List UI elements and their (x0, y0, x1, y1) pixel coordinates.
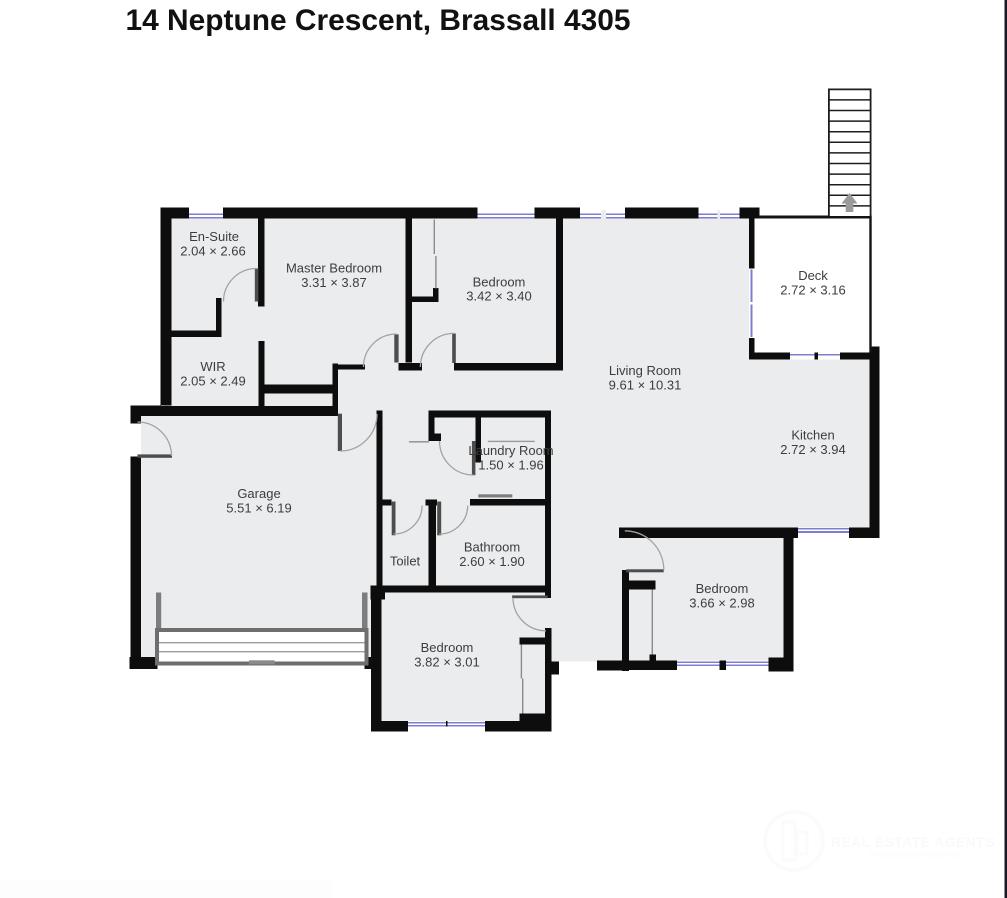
svg-text:Toilet: Toilet (390, 554, 421, 569)
svg-text:Laundry Room: Laundry Room (468, 443, 553, 458)
svg-text:Bedroom: Bedroom (473, 275, 526, 290)
svg-text:1.50 × 1.96: 1.50 × 1.96 (478, 458, 543, 473)
svg-text:2.05 × 2.49: 2.05 × 2.49 (180, 374, 245, 389)
svg-text:Master Bedroom: Master Bedroom (286, 261, 382, 276)
svg-text:3.66 × 2.98: 3.66 × 2.98 (689, 596, 754, 611)
svg-text:Garage: Garage (237, 486, 280, 501)
svg-text:Bathroom: Bathroom (464, 540, 520, 555)
svg-text:Bedroom: Bedroom (421, 640, 474, 655)
svg-text:Real estate professionals: Real estate professionals (869, 849, 965, 859)
svg-text:Deck: Deck (798, 268, 828, 283)
svg-text:WIR: WIR (200, 359, 225, 374)
svg-text:2.60 × 1.90: 2.60 × 1.90 (459, 554, 524, 569)
svg-text:2.72 × 3.16: 2.72 × 3.16 (780, 282, 845, 297)
svg-text:Bedroom: Bedroom (696, 581, 749, 596)
svg-text:2.04 × 2.66: 2.04 × 2.66 (180, 244, 245, 259)
svg-text:2.72 × 3.94: 2.72 × 3.94 (780, 442, 845, 457)
svg-text:3.82 × 3.01: 3.82 × 3.01 (414, 655, 479, 670)
svg-text:Living Room: Living Room (609, 363, 681, 378)
svg-text:9.61 × 10.31: 9.61 × 10.31 (609, 378, 682, 393)
svg-text:REAL ESTATE AGENTS: REAL ESTATE AGENTS (831, 834, 995, 850)
svg-text:Kitchen: Kitchen (791, 428, 834, 443)
svg-text:En-Suite: En-Suite (189, 229, 239, 244)
svg-text:14 Neptune Crescent, Brassall: 14 Neptune Crescent, Brassall 4305 (126, 4, 631, 37)
svg-text:3.42 × 3.40: 3.42 × 3.40 (466, 289, 531, 304)
svg-text:5.51 × 6.19: 5.51 × 6.19 (226, 501, 291, 516)
svg-text:3.31 × 3.87: 3.31 × 3.87 (301, 275, 366, 290)
